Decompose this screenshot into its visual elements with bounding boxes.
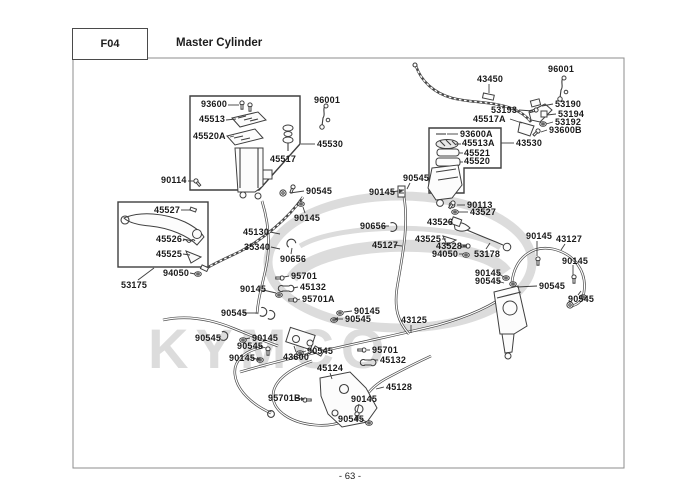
- part-label-43526-15: 43526: [427, 218, 453, 227]
- part-label-94050-18: 94050: [432, 250, 458, 259]
- part-label-35340-33: 35340: [244, 243, 270, 252]
- part-label-45517A-5: 45517A: [473, 115, 506, 124]
- part-label-95701A-39: 95701A: [302, 295, 335, 304]
- part-label-53178-19: 53178: [474, 250, 500, 259]
- part-label-45127-45: 45127: [372, 241, 398, 250]
- part-label-45124-54: 45124: [317, 364, 343, 373]
- part-label-53190-2: 53190: [555, 100, 581, 109]
- part-label-90656-44: 90656: [360, 222, 386, 231]
- part-label-43127-66: 43127: [556, 235, 582, 244]
- part-label-90145-51: 90145: [229, 354, 255, 363]
- part-label-45517-23: 45517: [270, 155, 296, 164]
- part-label-90545-43: 90545: [403, 174, 429, 183]
- part-label-45530-24: 45530: [317, 140, 343, 149]
- part-label-90145-42: 90145: [369, 188, 395, 197]
- part-label-45525-29: 45525: [156, 250, 182, 259]
- doc-code: F04: [101, 38, 120, 50]
- part-label-45527-27: 45527: [154, 206, 180, 215]
- part-label-90114-26: 90114: [161, 176, 187, 185]
- part-label-95701-60: 95701: [372, 346, 398, 355]
- page-title: Master Cylinder: [176, 37, 262, 49]
- part-labels-layer: 434509600153190531935319445517A531929360…: [0, 0, 700, 495]
- part-label-43530-8: 43530: [516, 139, 542, 148]
- part-label-43527-14: 43527: [470, 208, 496, 217]
- catalog-page: F04 Master Cylinder KYMCO: [0, 0, 700, 495]
- part-label-45132-61: 45132: [380, 356, 406, 365]
- part-label-45513A-10: 45513A: [462, 139, 495, 148]
- part-label-45520A-22: 45520A: [193, 132, 226, 141]
- part-label-53175-31: 53175: [121, 281, 147, 290]
- part-label-90545-48: 90545: [195, 334, 221, 343]
- part-label-90545-47: 90545: [345, 315, 371, 324]
- part-label-90545-58: 90545: [338, 415, 364, 424]
- part-label-45128-56: 45128: [386, 383, 412, 392]
- part-label-43450-0: 43450: [477, 75, 503, 84]
- part-label-90545-63: 90545: [475, 277, 501, 286]
- part-label-45526-28: 45526: [156, 235, 182, 244]
- part-label-93600-20: 93600: [201, 100, 227, 109]
- part-label-45132-38: 45132: [300, 283, 326, 292]
- part-label-45130-32: 45130: [243, 228, 269, 237]
- part-label-90145-57: 90145: [351, 395, 377, 404]
- part-label-43125-59: 43125: [401, 316, 427, 325]
- part-label-95701-37: 95701: [291, 272, 317, 281]
- page-number: - 63 -: [0, 471, 700, 482]
- part-label-45513-21: 45513: [199, 115, 225, 124]
- doc-code-box: F04: [72, 28, 148, 60]
- part-label-90145-40: 90145: [240, 285, 266, 294]
- part-label-94050-30: 94050: [163, 269, 189, 278]
- part-label-90145-67: 90145: [562, 257, 588, 266]
- part-label-90145-35: 90145: [294, 214, 320, 223]
- part-label-45520-12: 45520: [464, 157, 490, 166]
- part-label-90545-68: 90545: [568, 295, 594, 304]
- part-label-90545-34: 90545: [306, 187, 332, 196]
- part-label-96001-25: 96001: [314, 96, 340, 105]
- part-label-95701B-55: 95701B: [268, 394, 301, 403]
- part-label-93600B-7: 93600B: [549, 126, 582, 135]
- part-label-90545-50: 90545: [237, 342, 263, 351]
- part-label-90545-53: 90545: [307, 347, 333, 356]
- part-label-96001-1: 96001: [548, 65, 574, 74]
- part-label-90545-41: 90545: [221, 309, 247, 318]
- part-label-90656-36: 90656: [280, 255, 306, 264]
- part-label-43600-52: 43600: [283, 353, 309, 362]
- part-label-90545-64: 90545: [539, 282, 565, 291]
- part-label-90145-65: 90145: [526, 232, 552, 241]
